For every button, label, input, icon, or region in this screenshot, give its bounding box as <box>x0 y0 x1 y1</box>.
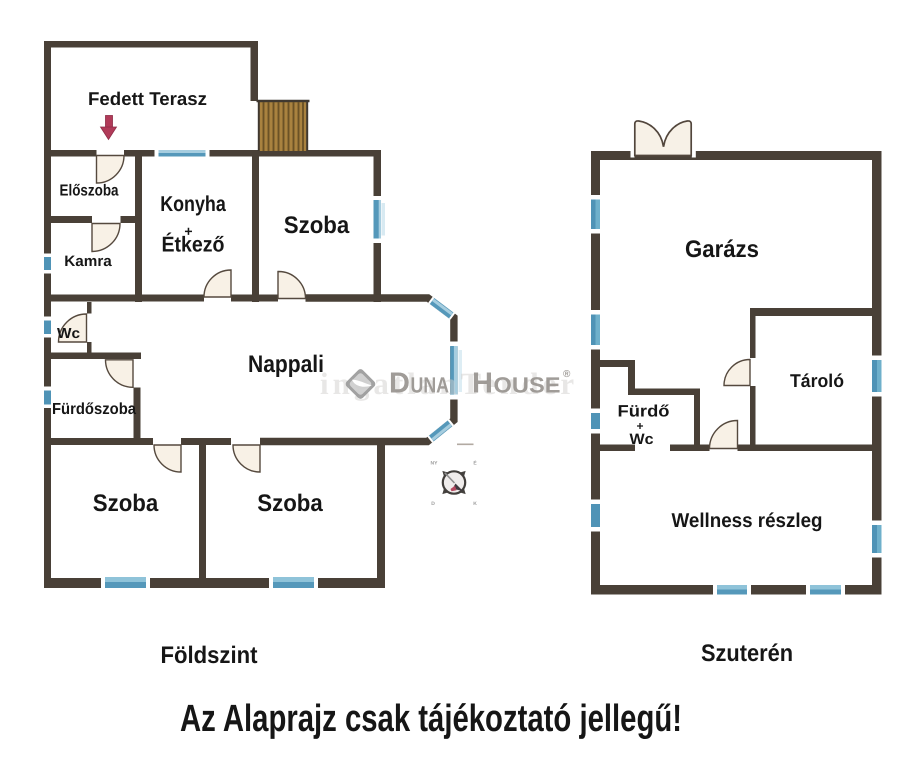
svg-text:D: D <box>431 501 435 507</box>
svg-text:Wellness részleg: Wellness részleg <box>672 510 823 532</box>
svg-text:Előszoba: Előszoba <box>60 183 119 200</box>
svg-text:Fürdőszoba: Fürdőszoba <box>52 401 136 418</box>
svg-text:Szoba: Szoba <box>257 490 323 517</box>
svg-text:Földszint: Földszint <box>161 642 258 669</box>
svg-text:Fedett Terasz: Fedett Terasz <box>88 88 207 109</box>
svg-text:Szoba: Szoba <box>284 212 350 239</box>
svg-text:H: H <box>472 368 493 400</box>
svg-text:Fürdő: Fürdő <box>618 403 670 421</box>
svg-text:Tároló: Tároló <box>790 370 844 391</box>
svg-text:UNA: UNA <box>411 373 450 398</box>
svg-text:É: É <box>473 460 477 467</box>
svg-text:Étkező: Étkező <box>162 232 225 257</box>
svg-text:Garázs: Garázs <box>685 236 759 263</box>
svg-text:®: ® <box>563 369 571 380</box>
svg-text:Wc: Wc <box>630 431 654 448</box>
svg-text:Az Alaprajz csak tájékoztató j: Az Alaprajz csak tájékoztató jellegű! <box>180 698 682 740</box>
svg-text:Szuterén: Szuterén <box>701 640 793 667</box>
svg-text:NY: NY <box>431 461 439 467</box>
svg-text:Wc: Wc <box>57 326 80 342</box>
svg-text:OUSE: OUSE <box>494 373 561 398</box>
svg-text:Konyha: Konyha <box>160 192 226 216</box>
svg-text:Szoba: Szoba <box>93 490 159 517</box>
svg-text:Nappali: Nappali <box>248 351 324 378</box>
svg-text:K: K <box>473 501 477 507</box>
svg-text:Kamra: Kamra <box>64 253 112 270</box>
svg-text:D: D <box>389 368 410 400</box>
